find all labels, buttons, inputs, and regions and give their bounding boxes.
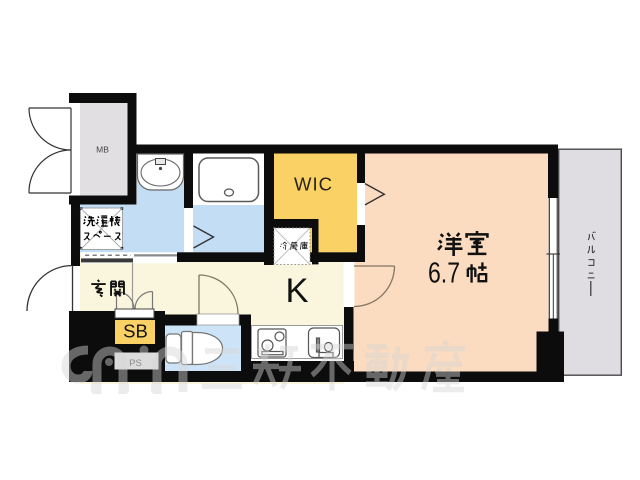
svg-text:MB: MB <box>96 145 109 155</box>
svg-text:PS: PS <box>129 358 142 369</box>
svg-text:6.7: 6.7 <box>428 258 460 290</box>
svg-text:SB: SB <box>123 321 148 342</box>
svg-text:K: K <box>285 272 308 310</box>
svg-text:WIC: WIC <box>294 174 333 195</box>
